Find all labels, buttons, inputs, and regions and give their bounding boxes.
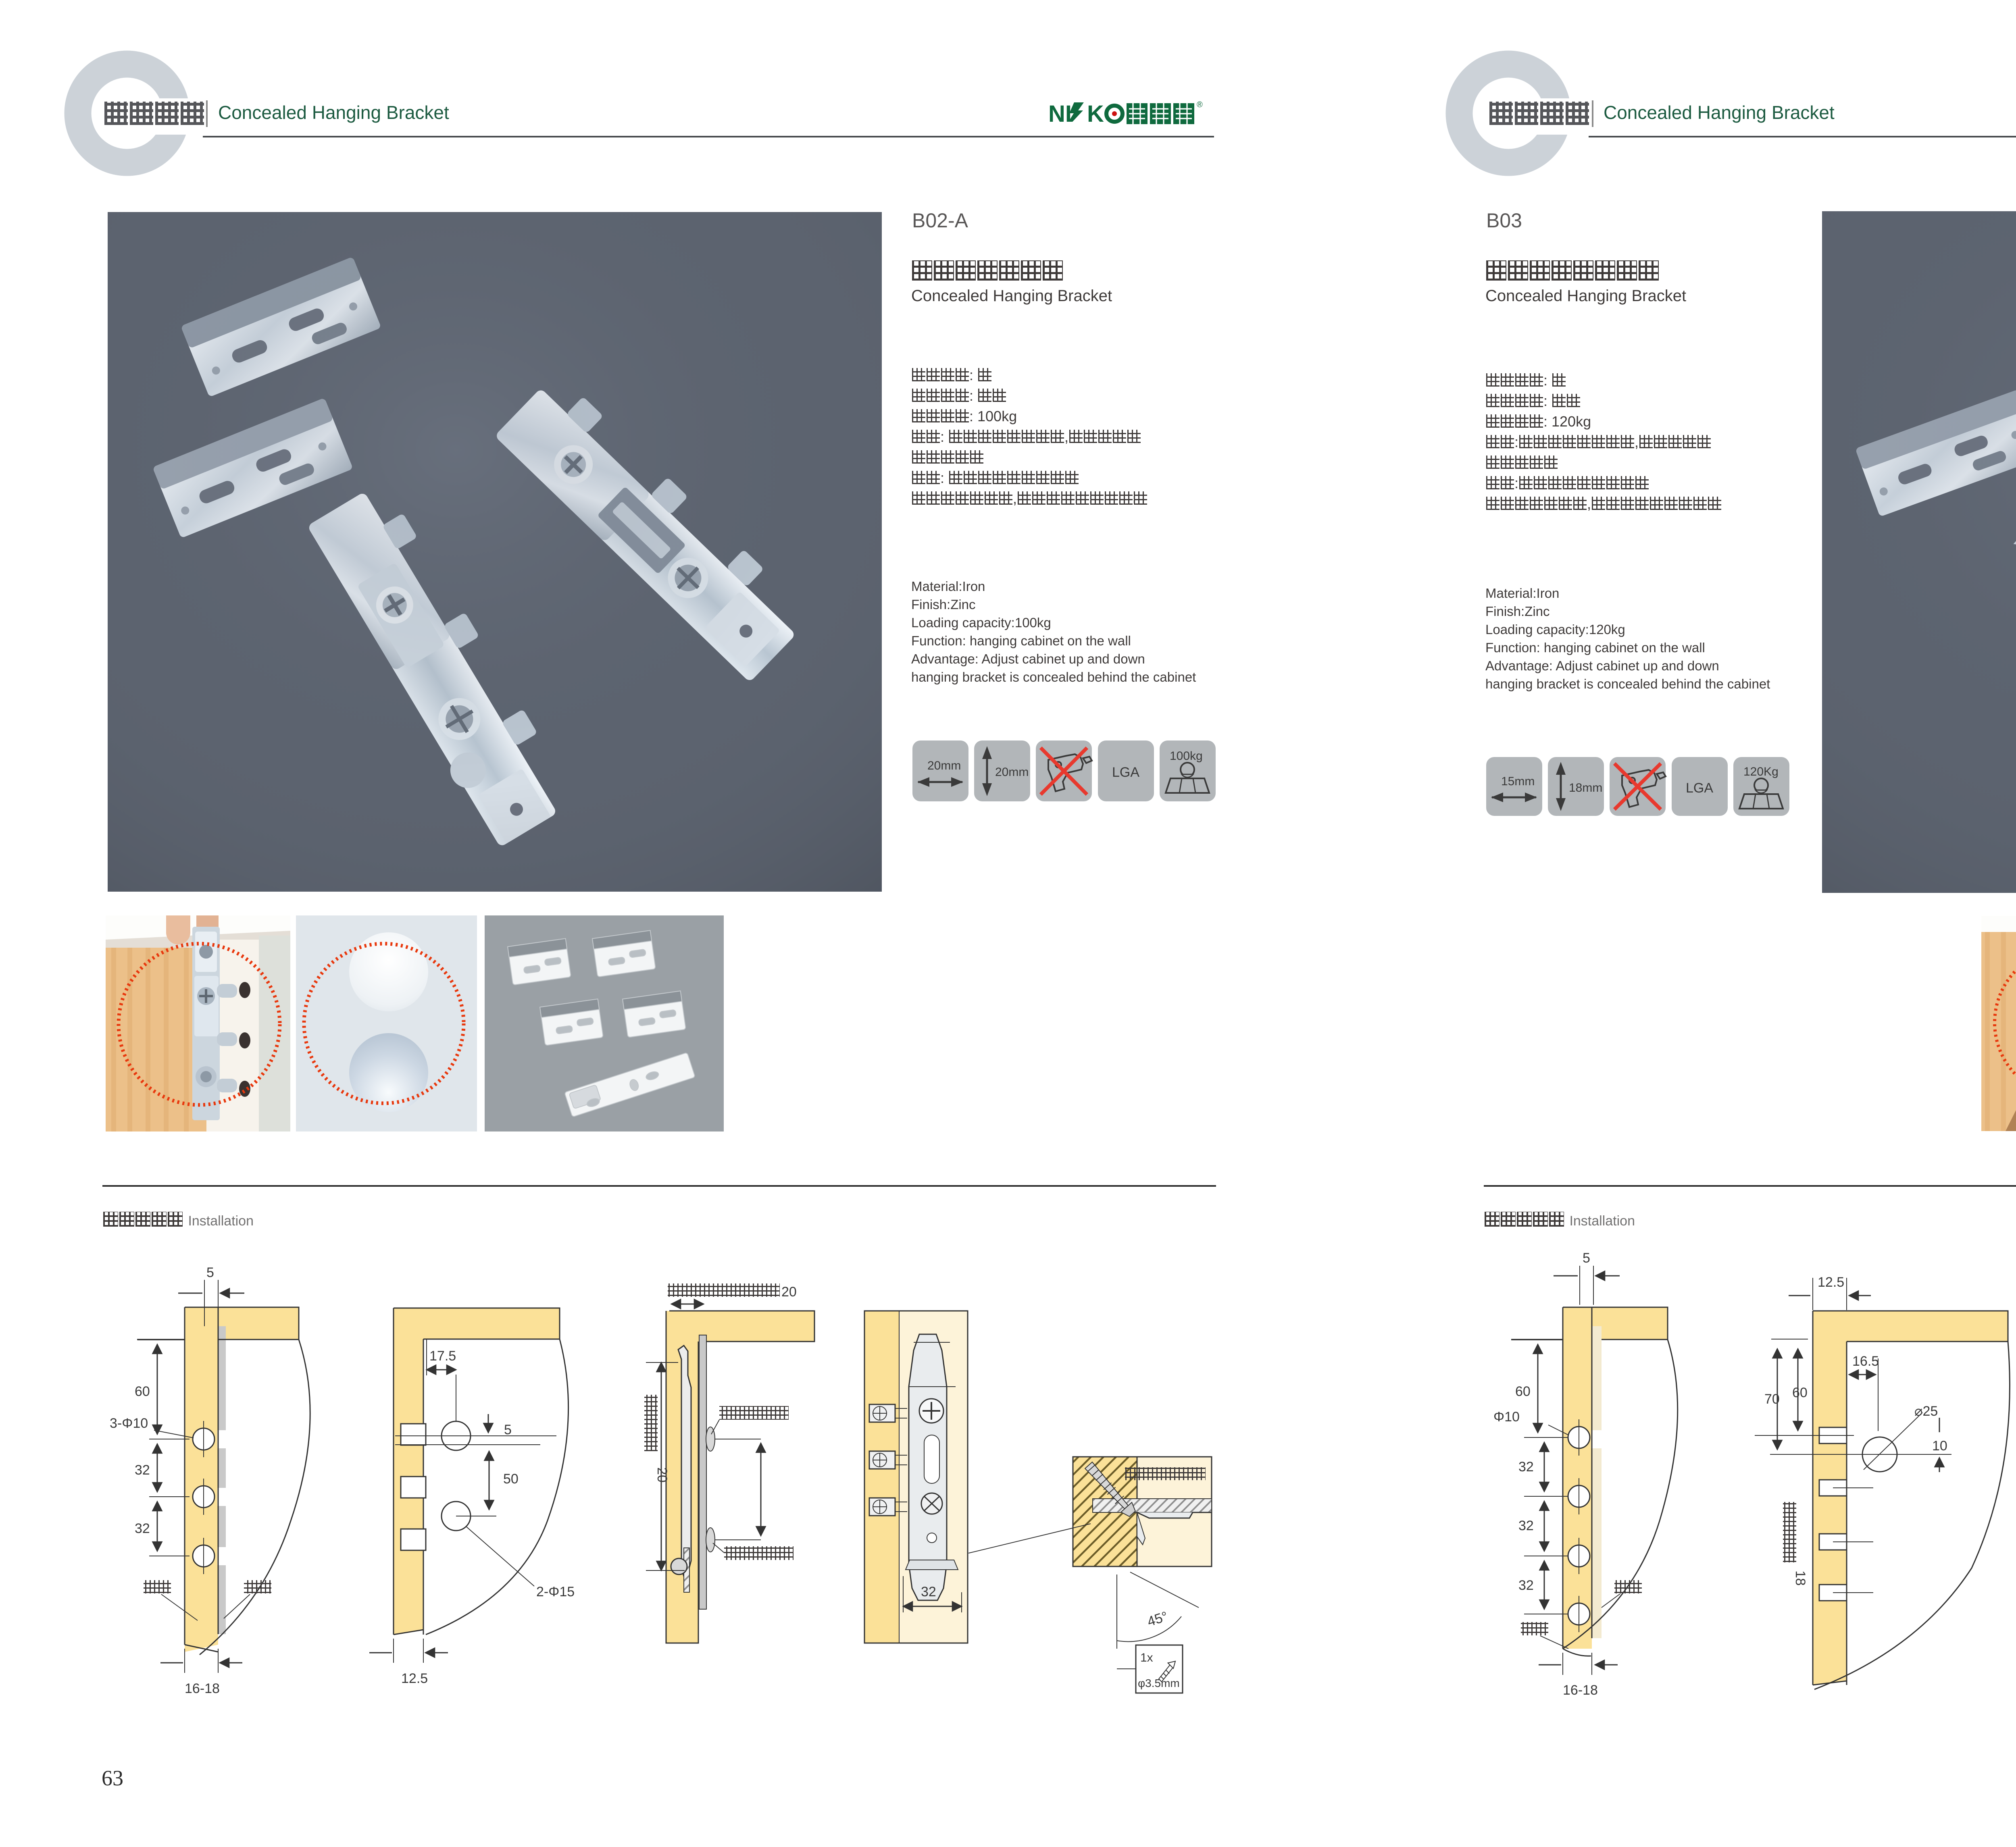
- svg-text:32: 32: [1518, 1459, 1534, 1475]
- svg-text:®: ®: [1197, 100, 1203, 109]
- svg-text:17.5: 17.5: [429, 1348, 456, 1364]
- svg-text:70: 70: [1764, 1391, 1780, 1407]
- svg-text:Φ10: Φ10: [1493, 1409, 1520, 1425]
- svg-text:16-18: 16-18: [185, 1681, 220, 1696]
- svg-text:NI: NI: [1048, 101, 1072, 127]
- svg-text:5: 5: [206, 1265, 214, 1280]
- svg-text:45°: 45°: [1145, 1609, 1170, 1630]
- svg-text:φ3.5mm: φ3.5mm: [1138, 1677, 1180, 1689]
- svg-text:12.5: 12.5: [401, 1671, 428, 1686]
- svg-text:60: 60: [1515, 1384, 1531, 1399]
- svg-text:20: 20: [654, 1467, 670, 1483]
- svg-text:K: K: [1087, 101, 1104, 127]
- svg-text:10: 10: [1932, 1438, 1947, 1454]
- svg-text:32: 32: [1518, 1518, 1534, 1533]
- svg-text:LGA: LGA: [1686, 780, 1713, 796]
- svg-text:LGA: LGA: [1112, 765, 1139, 780]
- svg-text:20mm: 20mm: [927, 759, 961, 772]
- svg-text:32: 32: [1518, 1578, 1534, 1593]
- svg-text:20mm: 20mm: [995, 765, 1029, 779]
- svg-text:⌀25: ⌀25: [1914, 1404, 1938, 1419]
- svg-text:2-Φ15: 2-Φ15: [536, 1584, 575, 1599]
- svg-text:3-Φ10: 3-Φ10: [110, 1416, 148, 1431]
- svg-text:60: 60: [135, 1384, 150, 1399]
- svg-text:32: 32: [135, 1521, 150, 1536]
- svg-text:18: 18: [1793, 1570, 1808, 1586]
- svg-text:5: 5: [1583, 1250, 1590, 1266]
- svg-text:15mm: 15mm: [1501, 775, 1535, 788]
- svg-text:1x: 1x: [1140, 1651, 1153, 1664]
- svg-text:50: 50: [503, 1471, 519, 1487]
- svg-text:32: 32: [921, 1584, 936, 1599]
- svg-text:60: 60: [1792, 1385, 1808, 1400]
- svg-text:120Kg: 120Kg: [1743, 765, 1779, 778]
- svg-text:16-18: 16-18: [1563, 1683, 1598, 1698]
- svg-text:32: 32: [135, 1462, 150, 1478]
- svg-text:18mm: 18mm: [1569, 781, 1602, 795]
- svg-text:12.5: 12.5: [1818, 1275, 1844, 1290]
- svg-text:100kg: 100kg: [1170, 749, 1203, 763]
- svg-text:5: 5: [504, 1422, 512, 1437]
- svg-text:16.5: 16.5: [1852, 1354, 1879, 1369]
- svg-text:20: 20: [781, 1284, 797, 1300]
